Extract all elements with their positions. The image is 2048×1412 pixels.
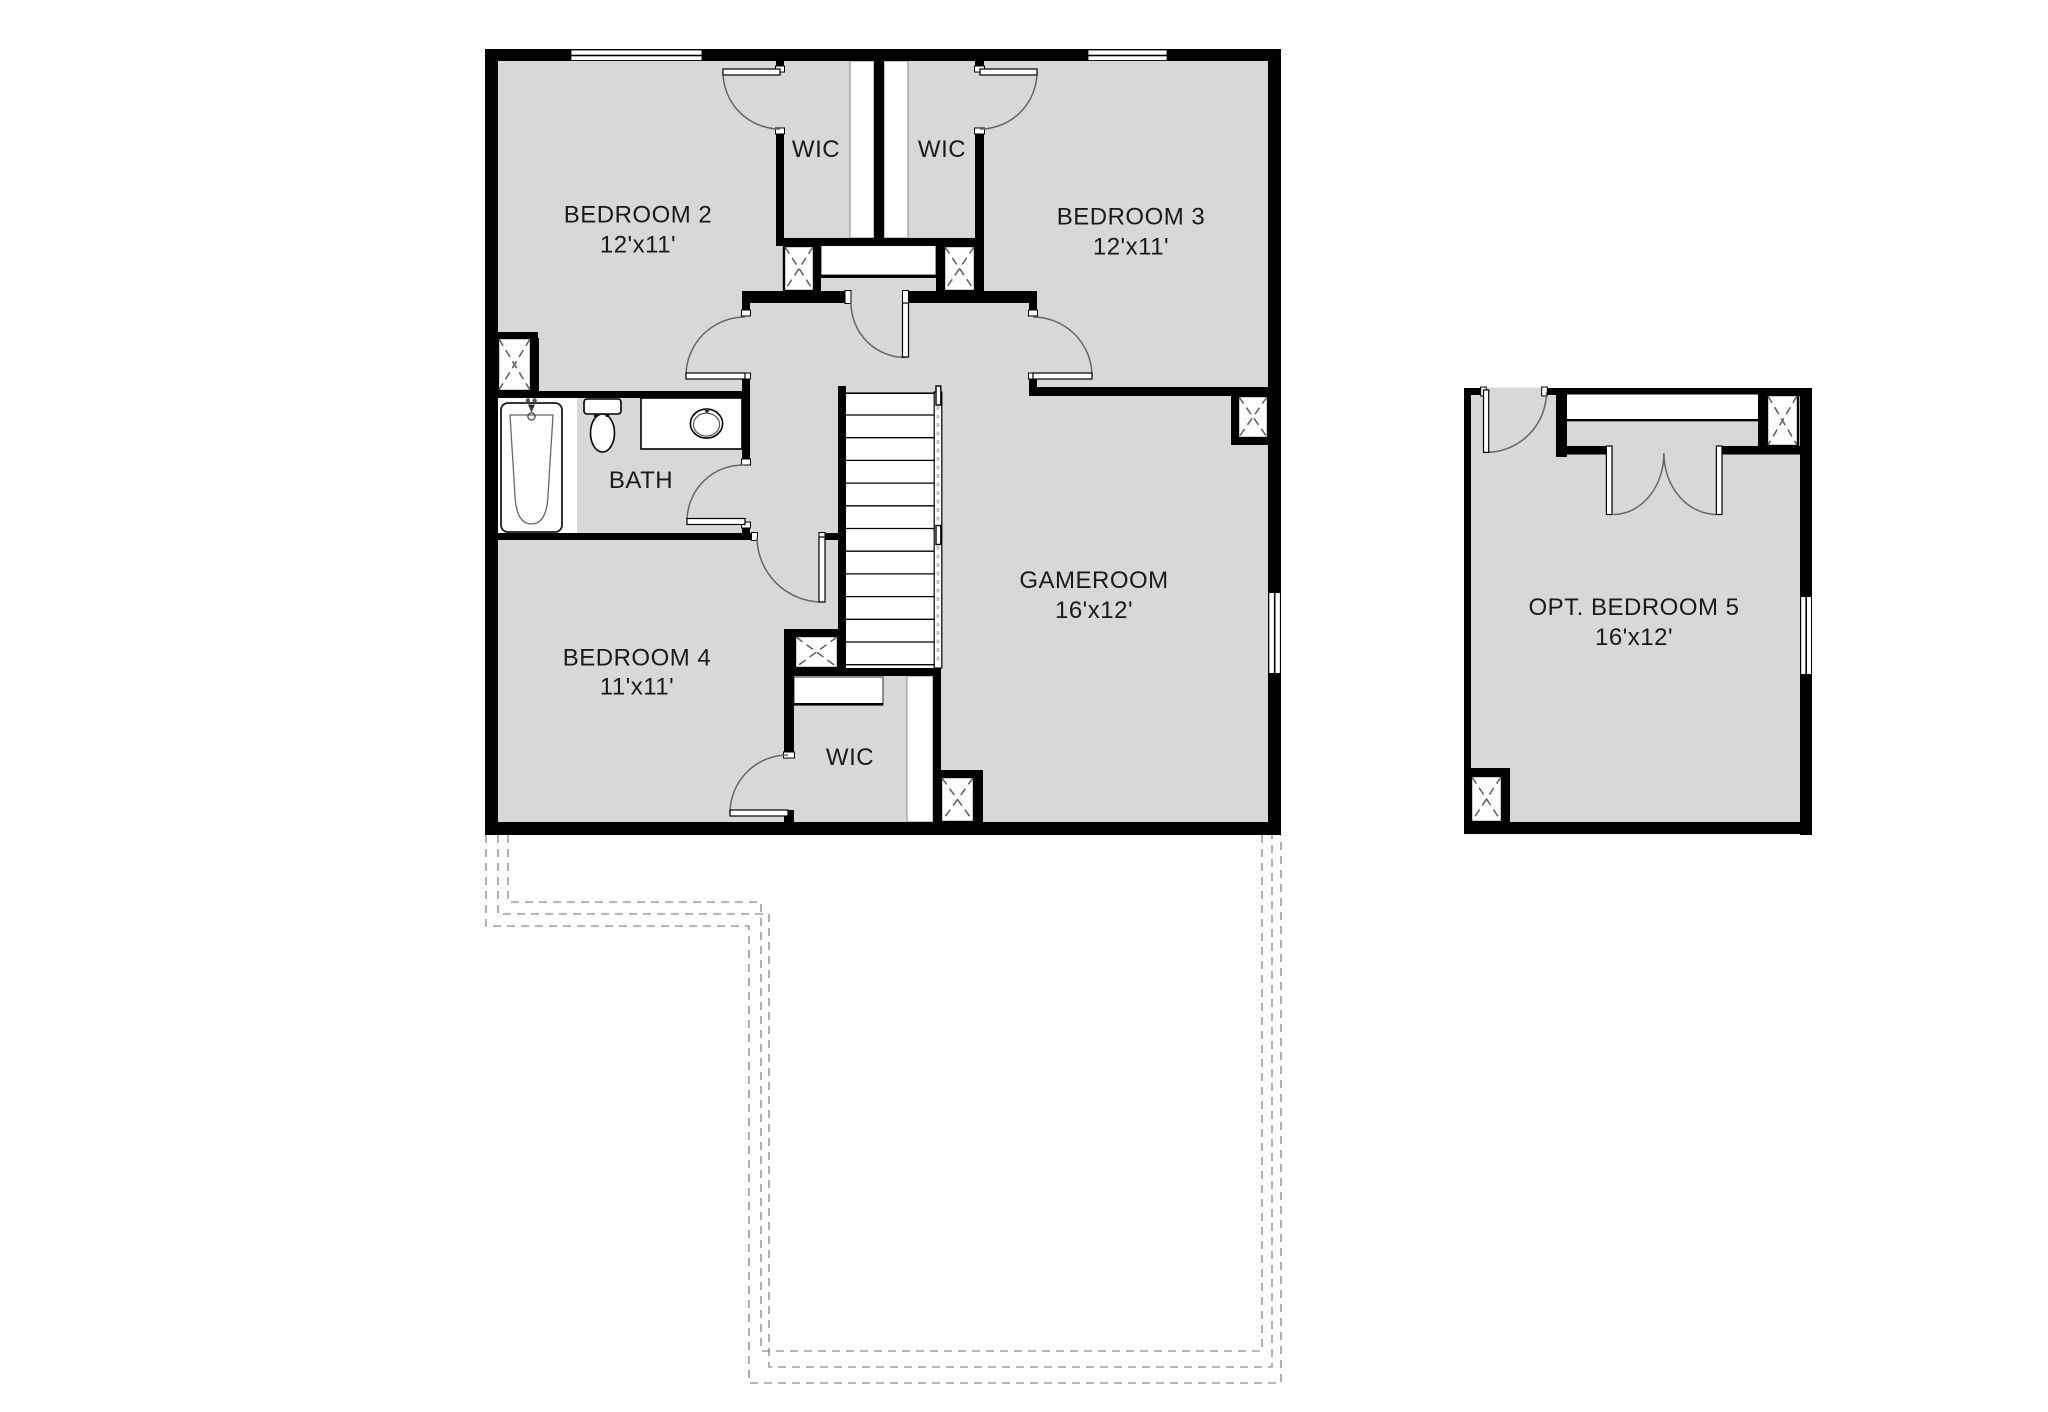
svg-text:16'x12': 16'x12' [1595,624,1673,651]
svg-text:BEDROOM 3: BEDROOM 3 [1057,204,1206,231]
svg-text:WIC: WIC [792,136,840,163]
svg-text:GAMEROOM: GAMEROOM [1019,567,1168,594]
svg-text:16'x12': 16'x12' [1055,597,1133,624]
svg-text:WIC: WIC [918,136,966,163]
svg-text:12'x11': 12'x11' [1093,234,1169,261]
svg-text:BEDROOM 4: BEDROOM 4 [563,645,712,672]
svg-text:WIC: WIC [826,744,874,771]
svg-text:11'x11': 11'x11' [600,674,675,701]
svg-text:BATH: BATH [609,467,673,494]
svg-text:OPT. BEDROOM 5: OPT. BEDROOM 5 [1528,594,1739,621]
svg-text:BEDROOM 2: BEDROOM 2 [564,202,713,229]
svg-text:12'x11': 12'x11' [600,232,676,259]
